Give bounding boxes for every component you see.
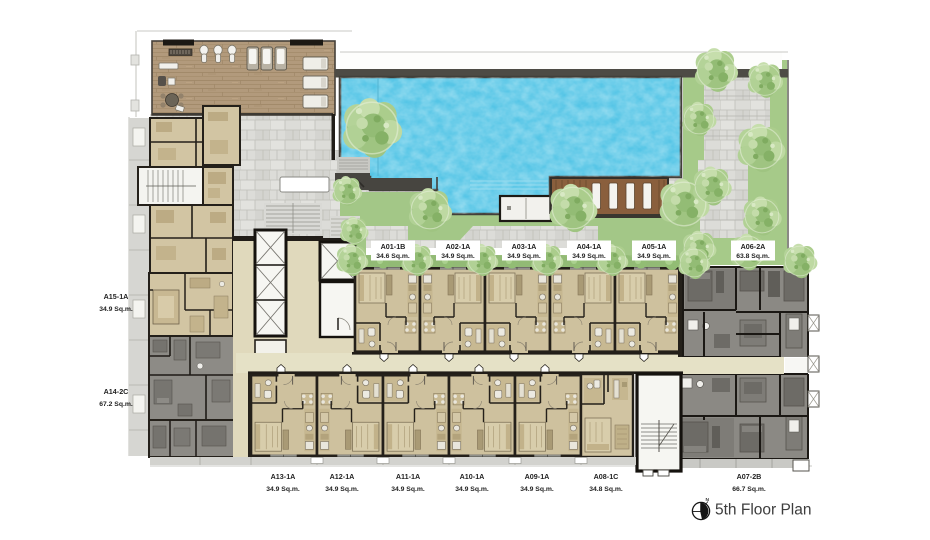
svg-text:34.9 Sq.m.: 34.9 Sq.m. bbox=[637, 253, 671, 260]
svg-text:A08-1C: A08-1C bbox=[594, 472, 619, 481]
svg-text:A07-2B: A07-2B bbox=[737, 472, 762, 481]
svg-text:34.9 Sq.m.: 34.9 Sq.m. bbox=[266, 486, 300, 493]
svg-text:A03-1A: A03-1A bbox=[512, 242, 537, 251]
svg-text:A09-1A: A09-1A bbox=[525, 472, 550, 481]
svg-text:63.8 Sq.m.: 63.8 Sq.m. bbox=[736, 253, 770, 260]
svg-text:34.9 Sq.m.: 34.9 Sq.m. bbox=[441, 253, 475, 260]
svg-text:A12-1A: A12-1A bbox=[330, 472, 355, 481]
svg-text:34.9 Sq.m.: 34.9 Sq.m. bbox=[507, 253, 541, 260]
svg-text:5th Floor Plan: 5th Floor Plan bbox=[715, 502, 812, 519]
svg-text:A13-1A: A13-1A bbox=[271, 472, 296, 481]
svg-text:A02-1A: A02-1A bbox=[446, 242, 471, 251]
svg-text:A04-1A: A04-1A bbox=[577, 242, 602, 251]
svg-text:A06-2A: A06-2A bbox=[741, 242, 766, 251]
svg-text:34.8 Sq.m.: 34.8 Sq.m. bbox=[589, 486, 623, 493]
svg-text:A05-1A: A05-1A bbox=[642, 242, 667, 251]
svg-text:67.2 Sq.m.: 67.2 Sq.m. bbox=[99, 401, 133, 408]
svg-text:66.7 Sq.m.: 66.7 Sq.m. bbox=[732, 486, 766, 493]
svg-text:34.9 Sq.m.: 34.9 Sq.m. bbox=[99, 306, 133, 313]
svg-text:N: N bbox=[706, 497, 710, 503]
svg-text:A14-2C: A14-2C bbox=[104, 387, 129, 396]
svg-text:34.9 Sq.m.: 34.9 Sq.m. bbox=[455, 486, 489, 493]
svg-text:34.9 Sq.m.: 34.9 Sq.m. bbox=[520, 486, 554, 493]
svg-text:34.9 Sq.m.: 34.9 Sq.m. bbox=[391, 486, 425, 493]
svg-text:A01-1B: A01-1B bbox=[381, 242, 406, 251]
svg-text:A15-1A: A15-1A bbox=[104, 292, 129, 301]
svg-text:A11-1A: A11-1A bbox=[396, 472, 420, 481]
svg-text:34.6 Sq.m.: 34.6 Sq.m. bbox=[376, 253, 410, 260]
svg-text:A10-1A: A10-1A bbox=[460, 472, 485, 481]
svg-text:34.9 Sq.m.: 34.9 Sq.m. bbox=[325, 486, 359, 493]
svg-text:34.9 Sq.m.: 34.9 Sq.m. bbox=[572, 253, 606, 260]
